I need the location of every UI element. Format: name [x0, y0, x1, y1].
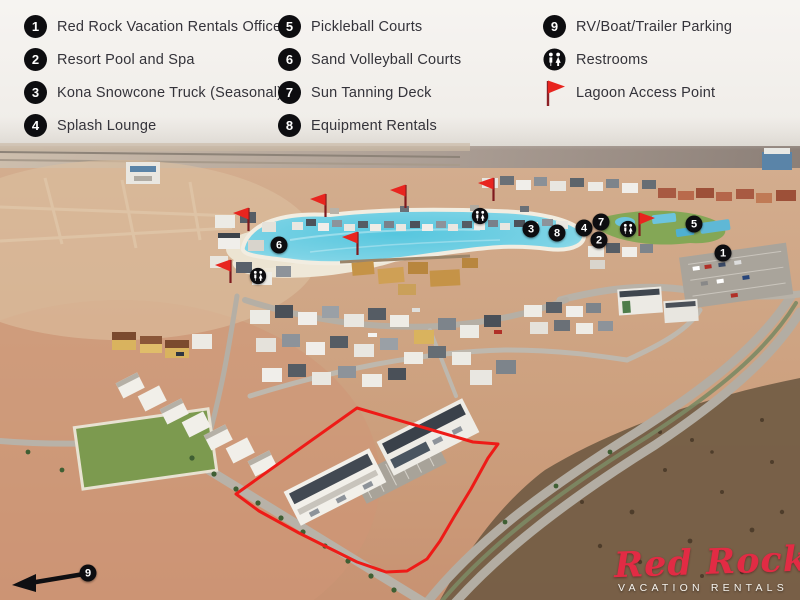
legend-item-rv-parking: 9 RV/Boat/Trailer Parking [543, 15, 732, 38]
legend-item-equipment: 8 Equipment Rentals [278, 114, 461, 137]
map-badge-2: 2 [591, 232, 608, 249]
legend-badge-8: 8 [278, 114, 301, 137]
legend-label: Sun Tanning Deck [311, 85, 432, 101]
legend-label: Red Rock Vacation Rentals Office [57, 19, 281, 35]
map-badge-5: 5 [686, 216, 703, 233]
restroom-marker [250, 268, 267, 285]
flag-marker [389, 183, 409, 209]
map-badge-7: 7 [593, 214, 610, 231]
map-badge-8: 8 [549, 225, 566, 242]
legend-label: Equipment Rentals [311, 118, 437, 134]
map-badge-6: 6 [271, 237, 288, 254]
flag-marker [214, 258, 234, 284]
legend-label: Pickleball Courts [311, 19, 422, 35]
flag-marker [232, 206, 252, 232]
restrooms-icon [543, 47, 566, 73]
legend-panel: 1 Red Rock Vacation Rentals Office 2 Res… [0, 0, 800, 150]
legend-label: Restrooms [576, 52, 648, 68]
legend-item-pool-spa: 2 Resort Pool and Spa [24, 48, 282, 71]
resort-map-image: 638472519 1 Red Rock Vacation Rentals Of… [0, 0, 800, 600]
legend-label: Resort Pool and Spa [57, 52, 195, 68]
map-badge-3: 3 [523, 221, 540, 238]
legend-badge-2: 2 [24, 48, 47, 71]
legend-item-office: 1 Red Rock Vacation Rentals Office [24, 15, 282, 38]
brand-logo: Red Rock VACATION RENTALS [614, 546, 792, 594]
flag-marker [477, 176, 497, 202]
lagoon-flag-icon [543, 80, 566, 106]
flag-marker [636, 211, 656, 237]
legend-badge-4: 4 [24, 114, 47, 137]
legend-label: RV/Boat/Trailer Parking [576, 19, 732, 35]
legend-item-restrooms: Restrooms [543, 48, 732, 71]
restroom-marker [620, 221, 637, 238]
legend-item-snowcone: 3 Kona Snowcone Truck (Seasonal) [24, 81, 282, 104]
legend-label: Kona Snowcone Truck (Seasonal) [57, 85, 282, 101]
legend-badge-7: 7 [278, 81, 301, 104]
restroom-marker [472, 208, 489, 225]
legend-badge-6: 6 [278, 48, 301, 71]
map-badge-4: 4 [576, 220, 593, 237]
legend-label: Sand Volleyball Courts [311, 52, 461, 68]
map-badge-9: 9 [80, 565, 97, 582]
legend-item-pickleball: 5 Pickleball Courts [278, 15, 461, 38]
legend-label: Lagoon Access Point [576, 85, 715, 101]
legend-badge-3: 3 [24, 81, 47, 104]
brand-logo-script: Red Rock [613, 543, 792, 582]
legend-item-lagoon-access: Lagoon Access Point [543, 81, 732, 104]
legend-label: Splash Lounge [57, 118, 156, 134]
flag-marker [309, 192, 329, 218]
flag-marker [341, 230, 361, 256]
legend-item-splash-lounge: 4 Splash Lounge [24, 114, 282, 137]
legend-column-2: 5 Pickleball Courts 6 Sand Volleyball Co… [278, 15, 461, 137]
legend-badge-1: 1 [24, 15, 47, 38]
legend-item-volleyball: 6 Sand Volleyball Courts [278, 48, 461, 71]
legend-badge-9: 9 [543, 15, 566, 38]
legend-badge-5: 5 [278, 15, 301, 38]
legend-column-3: 9 RV/Boat/Trailer Parking Restrooms Lago… [543, 15, 732, 104]
legend-column-1: 1 Red Rock Vacation Rentals Office 2 Res… [24, 15, 282, 137]
map-badge-1: 1 [715, 245, 732, 262]
legend-item-tanning-deck: 7 Sun Tanning Deck [278, 81, 461, 104]
